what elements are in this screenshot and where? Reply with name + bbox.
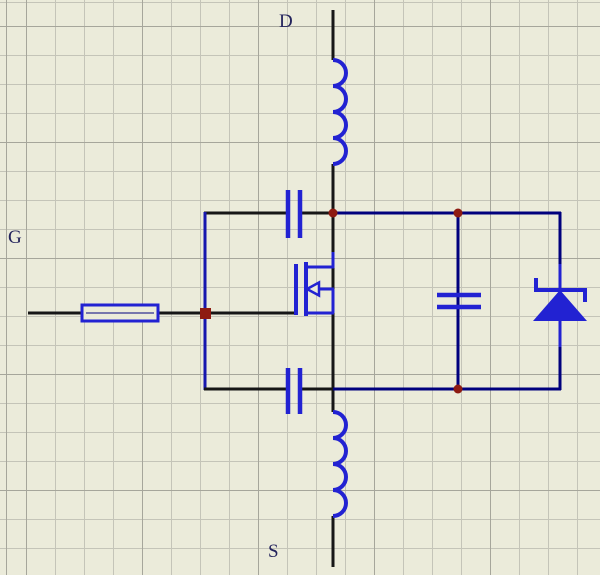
port-label-gate[interactable]: G xyxy=(8,227,22,249)
mosfet-arrow[interactable] xyxy=(307,283,319,296)
junction-dot-drain[interactable] xyxy=(329,209,338,218)
schematic-canvas[interactable]: D G S xyxy=(0,0,600,575)
port-label-drain[interactable]: D xyxy=(279,11,293,33)
inductor-top[interactable] xyxy=(333,60,346,164)
schematic-svg[interactable] xyxy=(0,0,600,575)
junction-dot-cap-bottom[interactable] xyxy=(454,385,463,394)
junction-square-gate[interactable] xyxy=(200,308,211,319)
diode-triangle[interactable] xyxy=(533,290,587,321)
junction-dot-cap-top[interactable] xyxy=(454,209,463,218)
port-label-source[interactable]: S xyxy=(268,541,279,563)
inductor-bottom[interactable] xyxy=(333,412,346,516)
